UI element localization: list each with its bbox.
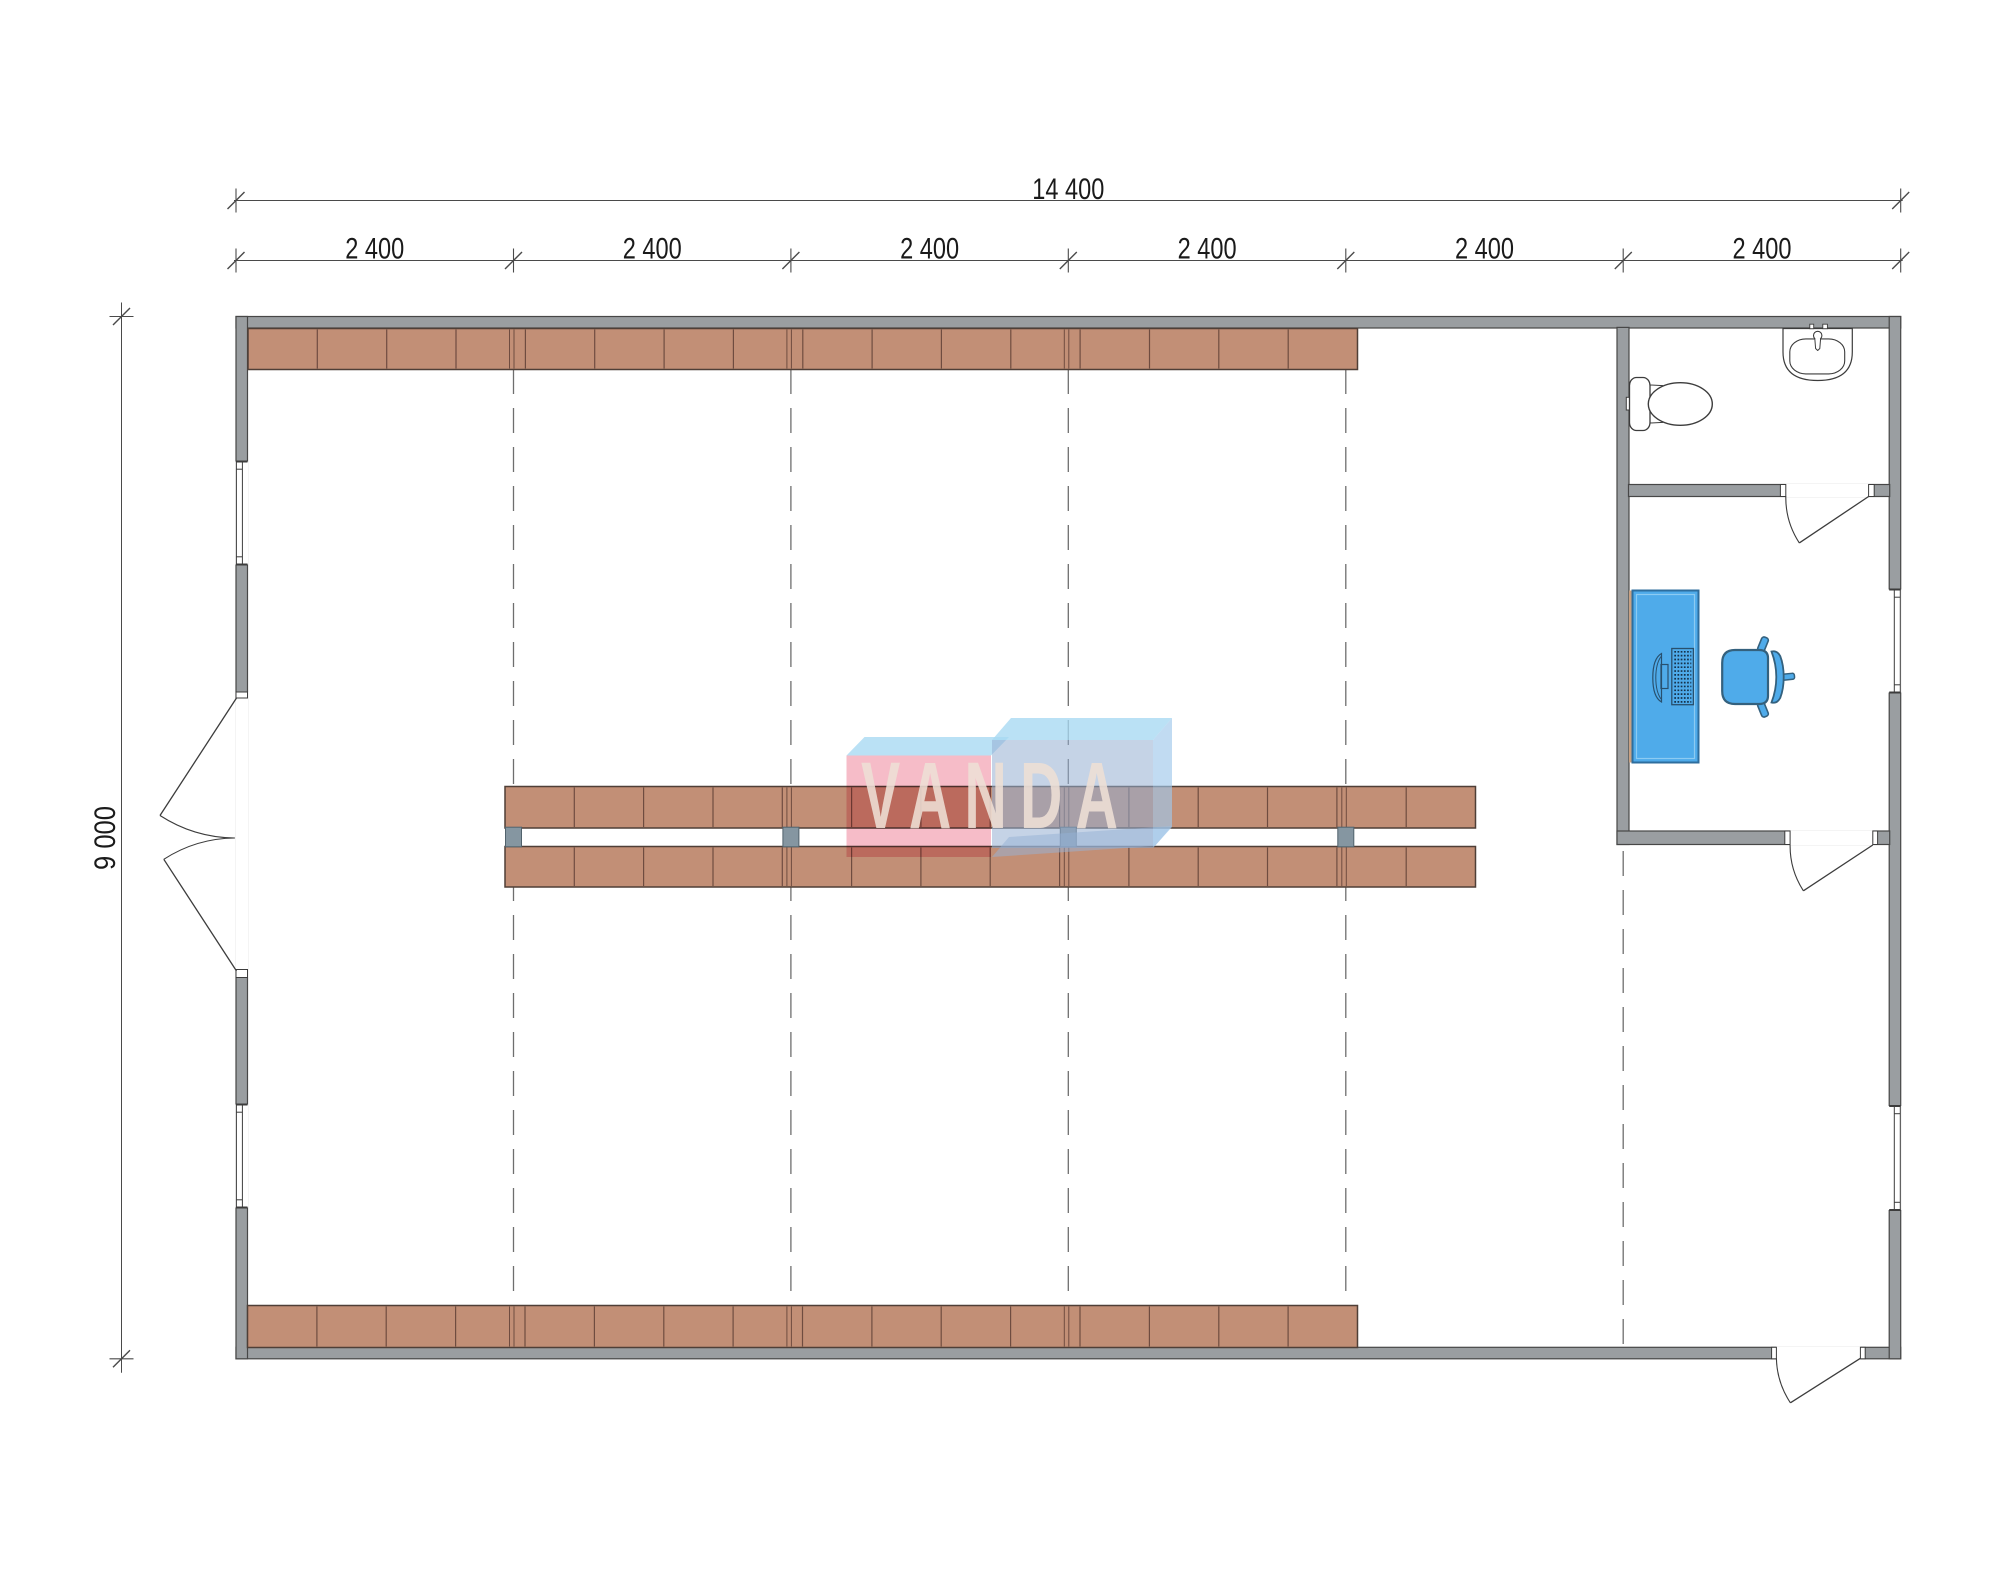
svg-text:2 400: 2 400: [1455, 233, 1514, 266]
svg-text:2 400: 2 400: [1733, 233, 1792, 266]
svg-text:2 400: 2 400: [1178, 233, 1237, 266]
svg-text:14 400: 14 400: [1032, 173, 1104, 206]
svg-text:2 400: 2 400: [623, 233, 682, 266]
svg-text:2 400: 2 400: [345, 233, 404, 266]
svg-text:2 400: 2 400: [900, 233, 959, 266]
svg-text:VANDA: VANDA: [861, 741, 1131, 848]
svg-text:9 000: 9 000: [89, 806, 122, 870]
